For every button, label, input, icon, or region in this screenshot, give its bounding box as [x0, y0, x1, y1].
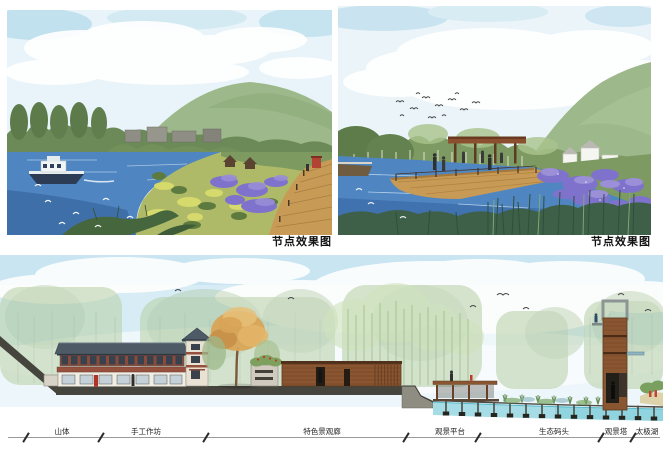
person-figure [450, 374, 453, 382]
render-left-scene [7, 10, 332, 235]
dimension-line [8, 437, 660, 438]
red-door [94, 375, 98, 387]
person-figure [306, 164, 309, 171]
render-right-image [338, 6, 651, 235]
render-right-caption: 节点效果图 [338, 236, 651, 248]
lower-windows [62, 375, 182, 384]
corridor-opening [344, 369, 350, 386]
gallery-corridor [281, 361, 402, 386]
flag [470, 375, 473, 381]
section-drawing [0, 255, 663, 425]
render-right-scene [338, 6, 651, 235]
right-balcony [627, 352, 644, 355]
person-figure [132, 377, 135, 387]
awning-band [57, 367, 187, 372]
workshop-building [44, 343, 188, 387]
red-kiosk [312, 157, 321, 168]
person-figure [595, 316, 598, 323]
left-balcony [592, 323, 603, 326]
planter-wall [250, 355, 282, 386]
section-label-dock: 生态码头 [539, 427, 569, 436]
section-label-platform: 观景平台 [435, 427, 465, 436]
section-label-mountain: 山体 [55, 427, 70, 436]
section-label-lake: 太极湖 [636, 427, 659, 436]
render-left-caption: 节点效果图 [7, 236, 332, 248]
person-figure [611, 385, 615, 399]
person-figure [655, 390, 658, 397]
presentation-sheet: 节点效果图 [0, 0, 663, 452]
section-label-tower: 观景塔 [605, 427, 628, 436]
person-figure [649, 391, 652, 397]
section-label-workshop: 手工作坊 [131, 427, 161, 436]
section-scene [0, 255, 663, 425]
render-left-image [7, 10, 332, 235]
person-figure [319, 372, 323, 383]
section-label-gallery: 特色景观廊 [303, 427, 341, 436]
main-roof [55, 343, 188, 354]
